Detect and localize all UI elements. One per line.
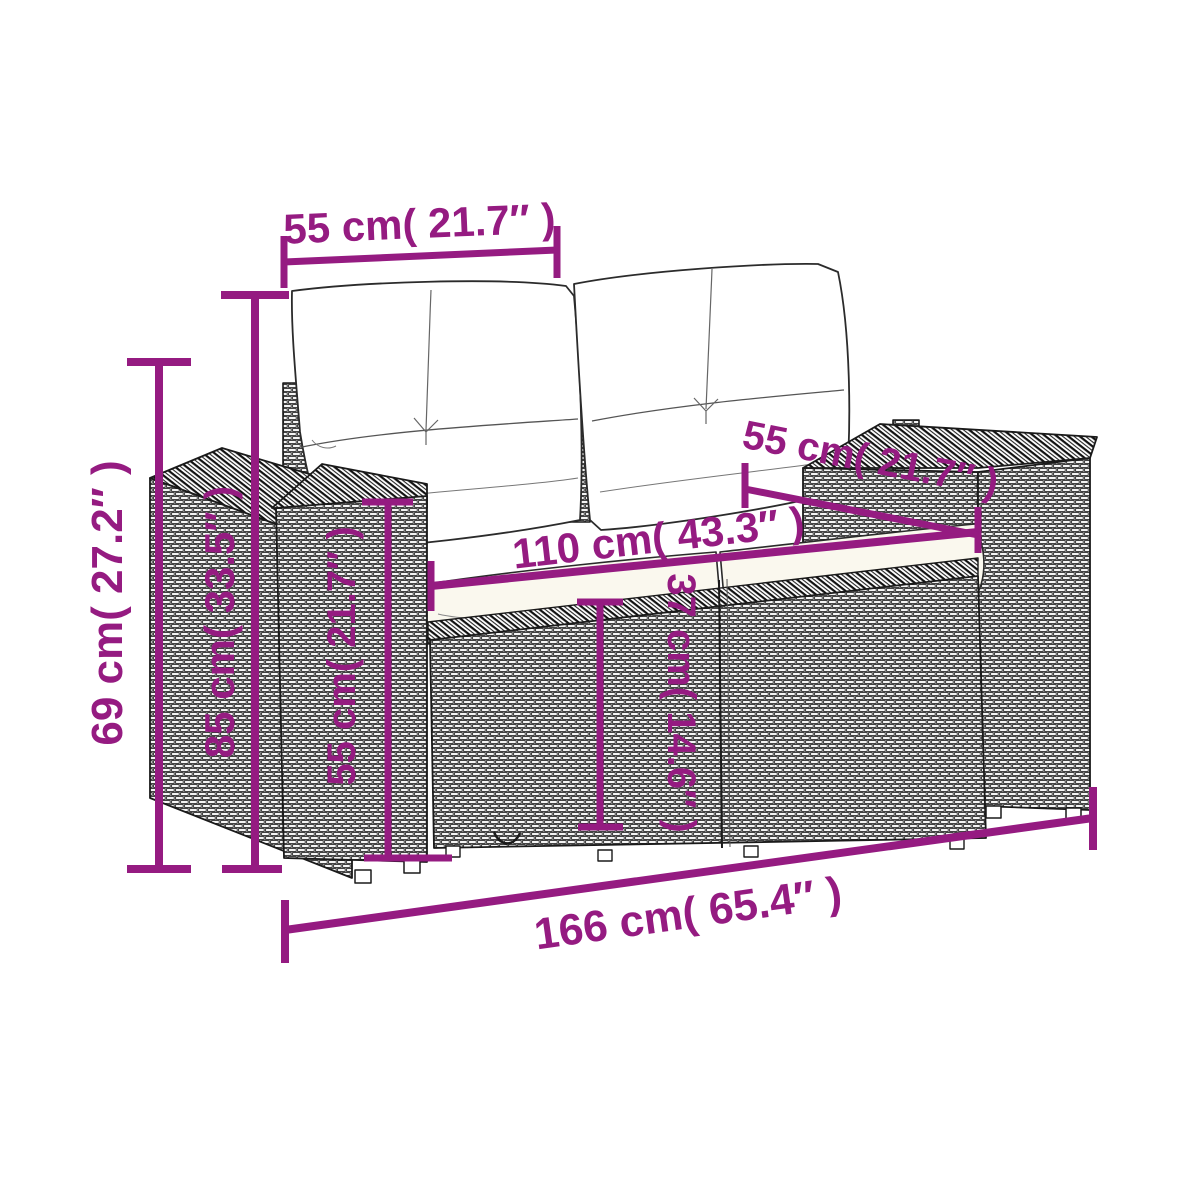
sofa-diagram-canvas: 55 cm( 21.7″ ) 69 cm( 27.2″ ) 85 cm( 33.…	[0, 0, 1200, 1200]
dim-label-backrest-height: 85 cm( 33.5″ )	[196, 486, 243, 758]
sofa-drawing	[150, 264, 1097, 883]
foot	[986, 806, 1001, 818]
dim-label-armrest-height: 55 cm( 21.7″ )	[320, 526, 364, 785]
armrest-right-front-face	[978, 458, 1090, 810]
foot	[744, 846, 758, 857]
dim-label-overall-height: 69 cm( 27.2″ )	[83, 460, 132, 745]
foot	[404, 860, 420, 873]
foot	[598, 850, 612, 861]
dim-label-seat-height: 37 cm( 14.6″ )	[659, 573, 703, 832]
dim-label-back-cushion-width: 55 cm( 21.7″ )	[282, 194, 556, 252]
dim-label-overall-width: 166 cm( 65.4″ )	[531, 868, 845, 960]
dimension-diagram: 55 cm( 21.7″ ) 69 cm( 27.2″ ) 85 cm( 33.…	[0, 0, 1200, 1200]
foot	[355, 870, 371, 883]
